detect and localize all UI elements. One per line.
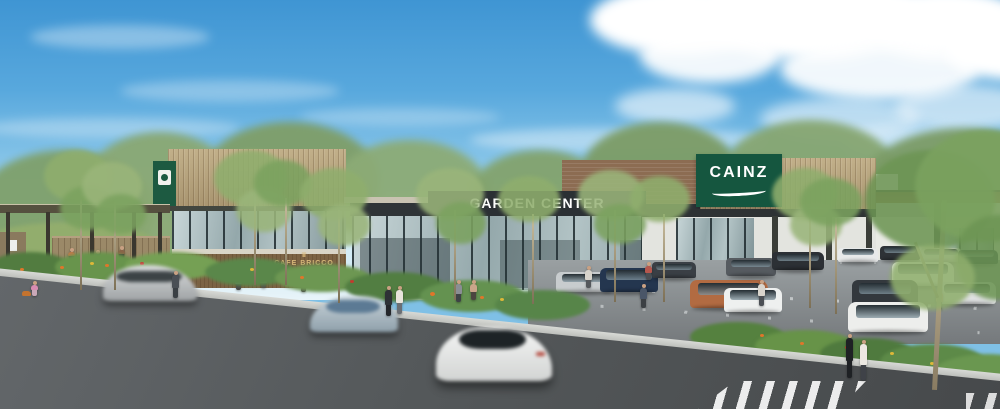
banner-emblem-glyph bbox=[161, 174, 168, 181]
tree bbox=[630, 176, 700, 302]
pedestrian bbox=[396, 286, 403, 314]
flower bbox=[760, 334, 764, 337]
cainz-underline-swoosh bbox=[712, 187, 766, 198]
cloud bbox=[615, 88, 735, 124]
cloud-wisp bbox=[30, 25, 210, 49]
cloud bbox=[640, 28, 780, 83]
rendering-canvas: ♛ CAFE BRICCO GARDEN CENTER CAINZ bbox=[0, 0, 1000, 409]
car-window bbox=[459, 330, 526, 348]
crosswalk-corner bbox=[966, 393, 1000, 409]
pedestrian bbox=[758, 280, 765, 306]
crossing-pedestrian bbox=[846, 334, 853, 378]
flower bbox=[800, 342, 804, 345]
pedestrian bbox=[385, 286, 392, 316]
tree bbox=[416, 168, 496, 300]
pedestrian bbox=[172, 271, 179, 298]
cloud-wisp bbox=[300, 108, 500, 126]
dog bbox=[22, 291, 31, 296]
tree bbox=[82, 162, 152, 290]
car-taillight bbox=[536, 352, 545, 356]
tree bbox=[300, 168, 380, 303]
parked-car bbox=[726, 258, 776, 276]
cainz-sign: CAINZ bbox=[696, 154, 782, 207]
large-tree bbox=[855, 120, 1000, 390]
cloud-wisp bbox=[120, 80, 340, 102]
child-pedestrian bbox=[31, 281, 38, 296]
cainz-label: CAINZ bbox=[696, 164, 782, 182]
tree bbox=[498, 176, 570, 304]
